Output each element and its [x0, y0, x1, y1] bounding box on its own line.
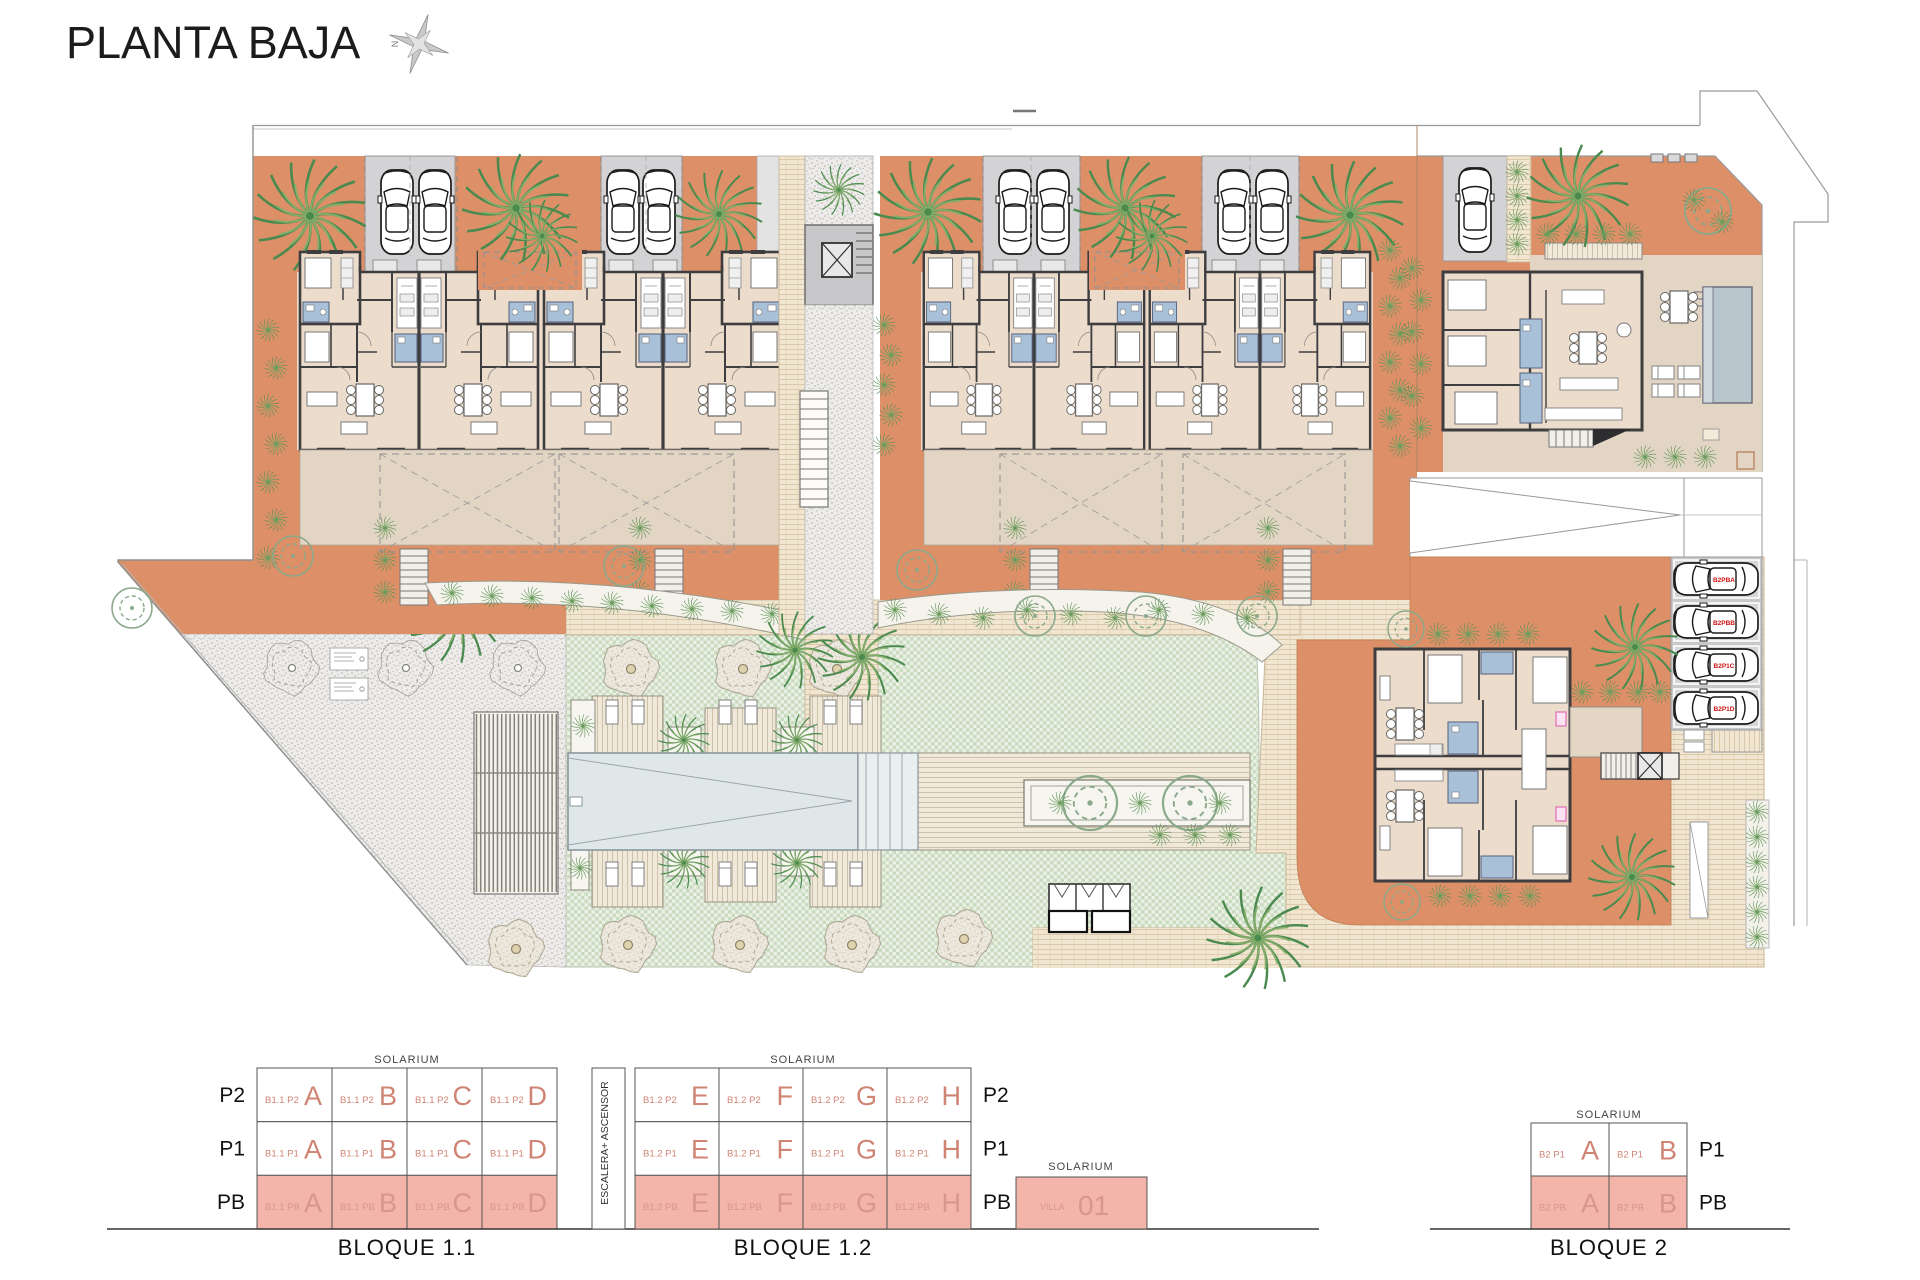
- svg-text:E: E: [691, 1081, 709, 1111]
- svg-text:B1.1 P1: B1.1 P1: [340, 1149, 374, 1160]
- svg-text:B2 PB: B2 PB: [1617, 1203, 1644, 1214]
- svg-text:B1.2 PB: B1.2 PB: [643, 1202, 678, 1213]
- svg-text:PB: PB: [1699, 1192, 1727, 1215]
- svg-text:A: A: [1581, 1136, 1599, 1166]
- svg-text:SOLARIUM: SOLARIUM: [1048, 1161, 1113, 1173]
- svg-text:B1.2 P2: B1.2 P2: [643, 1095, 677, 1106]
- svg-text:N: N: [390, 41, 400, 48]
- svg-text:B1.1 PB: B1.1 PB: [415, 1202, 450, 1213]
- svg-text:B: B: [379, 1188, 397, 1218]
- svg-text:B1.1 PB: B1.1 PB: [490, 1202, 525, 1213]
- svg-text:SOLARIUM: SOLARIUM: [770, 1054, 835, 1066]
- svg-text:G: G: [856, 1081, 877, 1111]
- svg-text:C: C: [453, 1081, 473, 1111]
- svg-text:D: D: [528, 1135, 548, 1165]
- svg-text:H: H: [942, 1081, 962, 1111]
- svg-text:B1.2 PB: B1.2 PB: [895, 1202, 930, 1213]
- svg-text:P2: P2: [219, 1084, 245, 1107]
- svg-text:B1.1 P1: B1.1 P1: [490, 1149, 524, 1160]
- svg-text:B: B: [1659, 1136, 1677, 1166]
- svg-text:B1.1 PB: B1.1 PB: [265, 1202, 300, 1213]
- svg-text:PLANTA BAJA: PLANTA BAJA: [66, 17, 360, 68]
- svg-text:A: A: [304, 1135, 322, 1165]
- svg-text:B1.2 P1: B1.2 P1: [727, 1149, 761, 1160]
- svg-text:E: E: [691, 1135, 709, 1165]
- svg-text:B1.1 P1: B1.1 P1: [415, 1149, 449, 1160]
- svg-text:P2: P2: [983, 1084, 1009, 1107]
- svg-text:B2 P1: B2 P1: [1539, 1150, 1565, 1161]
- svg-text:BLOQUE 1.1: BLOQUE 1.1: [338, 1235, 476, 1260]
- svg-text:01: 01: [1078, 1190, 1109, 1221]
- svg-text:SOLARIUM: SOLARIUM: [1576, 1109, 1641, 1121]
- svg-text:C: C: [453, 1135, 473, 1165]
- svg-text:SOLARIUM: SOLARIUM: [374, 1054, 439, 1066]
- svg-text:BLOQUE 2: BLOQUE 2: [1550, 1235, 1668, 1260]
- svg-text:P1: P1: [1699, 1139, 1725, 1162]
- svg-text:G: G: [856, 1135, 877, 1165]
- svg-text:B1.1 PB: B1.1 PB: [340, 1202, 375, 1213]
- svg-text:H: H: [942, 1135, 962, 1165]
- svg-text:B1.2 P1: B1.2 P1: [811, 1149, 845, 1160]
- svg-text:ESCALERA+ ASCENSOR: ESCALERA+ ASCENSOR: [599, 1081, 611, 1205]
- svg-text:B2PBB: B2PBB: [1713, 620, 1735, 627]
- svg-text:B: B: [379, 1081, 397, 1111]
- svg-text:F: F: [777, 1188, 794, 1218]
- svg-text:B1.1 P2: B1.1 P2: [490, 1095, 524, 1106]
- svg-text:D: D: [528, 1188, 548, 1218]
- svg-text:B1.2 PB: B1.2 PB: [727, 1202, 762, 1213]
- svg-text:B2PBA: B2PBA: [1713, 577, 1735, 584]
- svg-text:B1.1 P2: B1.1 P2: [415, 1095, 449, 1106]
- svg-text:D: D: [528, 1081, 548, 1111]
- svg-text:PB: PB: [217, 1191, 245, 1214]
- svg-text:B2 PB: B2 PB: [1539, 1203, 1566, 1214]
- svg-text:B2P1C: B2P1C: [1714, 663, 1735, 670]
- svg-text:F: F: [777, 1135, 794, 1165]
- svg-text:B1.1 P2: B1.1 P2: [340, 1095, 374, 1106]
- svg-text:A: A: [304, 1188, 322, 1218]
- svg-text:PB: PB: [983, 1191, 1011, 1214]
- svg-text:P1: P1: [983, 1138, 1009, 1161]
- svg-text:B1.2 P2: B1.2 P2: [727, 1095, 761, 1106]
- svg-text:B1.1 P1: B1.1 P1: [265, 1149, 299, 1160]
- svg-text:BLOQUE 1.2: BLOQUE 1.2: [734, 1235, 872, 1260]
- svg-text:F: F: [777, 1081, 794, 1111]
- svg-text:A: A: [1581, 1189, 1599, 1219]
- svg-text:B1.2 P1: B1.2 P1: [895, 1149, 929, 1160]
- svg-text:B1.2 P1: B1.2 P1: [643, 1149, 677, 1160]
- svg-text:B2 P1: B2 P1: [1617, 1150, 1643, 1161]
- svg-text:B2P1D: B2P1D: [1714, 706, 1735, 713]
- svg-text:VILLA: VILLA: [1040, 1202, 1065, 1212]
- svg-text:C: C: [453, 1188, 473, 1218]
- svg-text:B: B: [379, 1135, 397, 1165]
- svg-text:H: H: [942, 1188, 962, 1218]
- svg-text:B1.1 P2: B1.1 P2: [265, 1095, 299, 1106]
- svg-text:B: B: [1659, 1189, 1677, 1219]
- svg-text:E: E: [691, 1188, 709, 1218]
- svg-text:A: A: [304, 1081, 322, 1111]
- svg-text:B1.2 P2: B1.2 P2: [895, 1095, 929, 1106]
- svg-text:B1.2 PB: B1.2 PB: [811, 1202, 846, 1213]
- svg-text:B1.2 P2: B1.2 P2: [811, 1095, 845, 1106]
- svg-text:P1: P1: [219, 1138, 245, 1161]
- svg-text:G: G: [856, 1188, 877, 1218]
